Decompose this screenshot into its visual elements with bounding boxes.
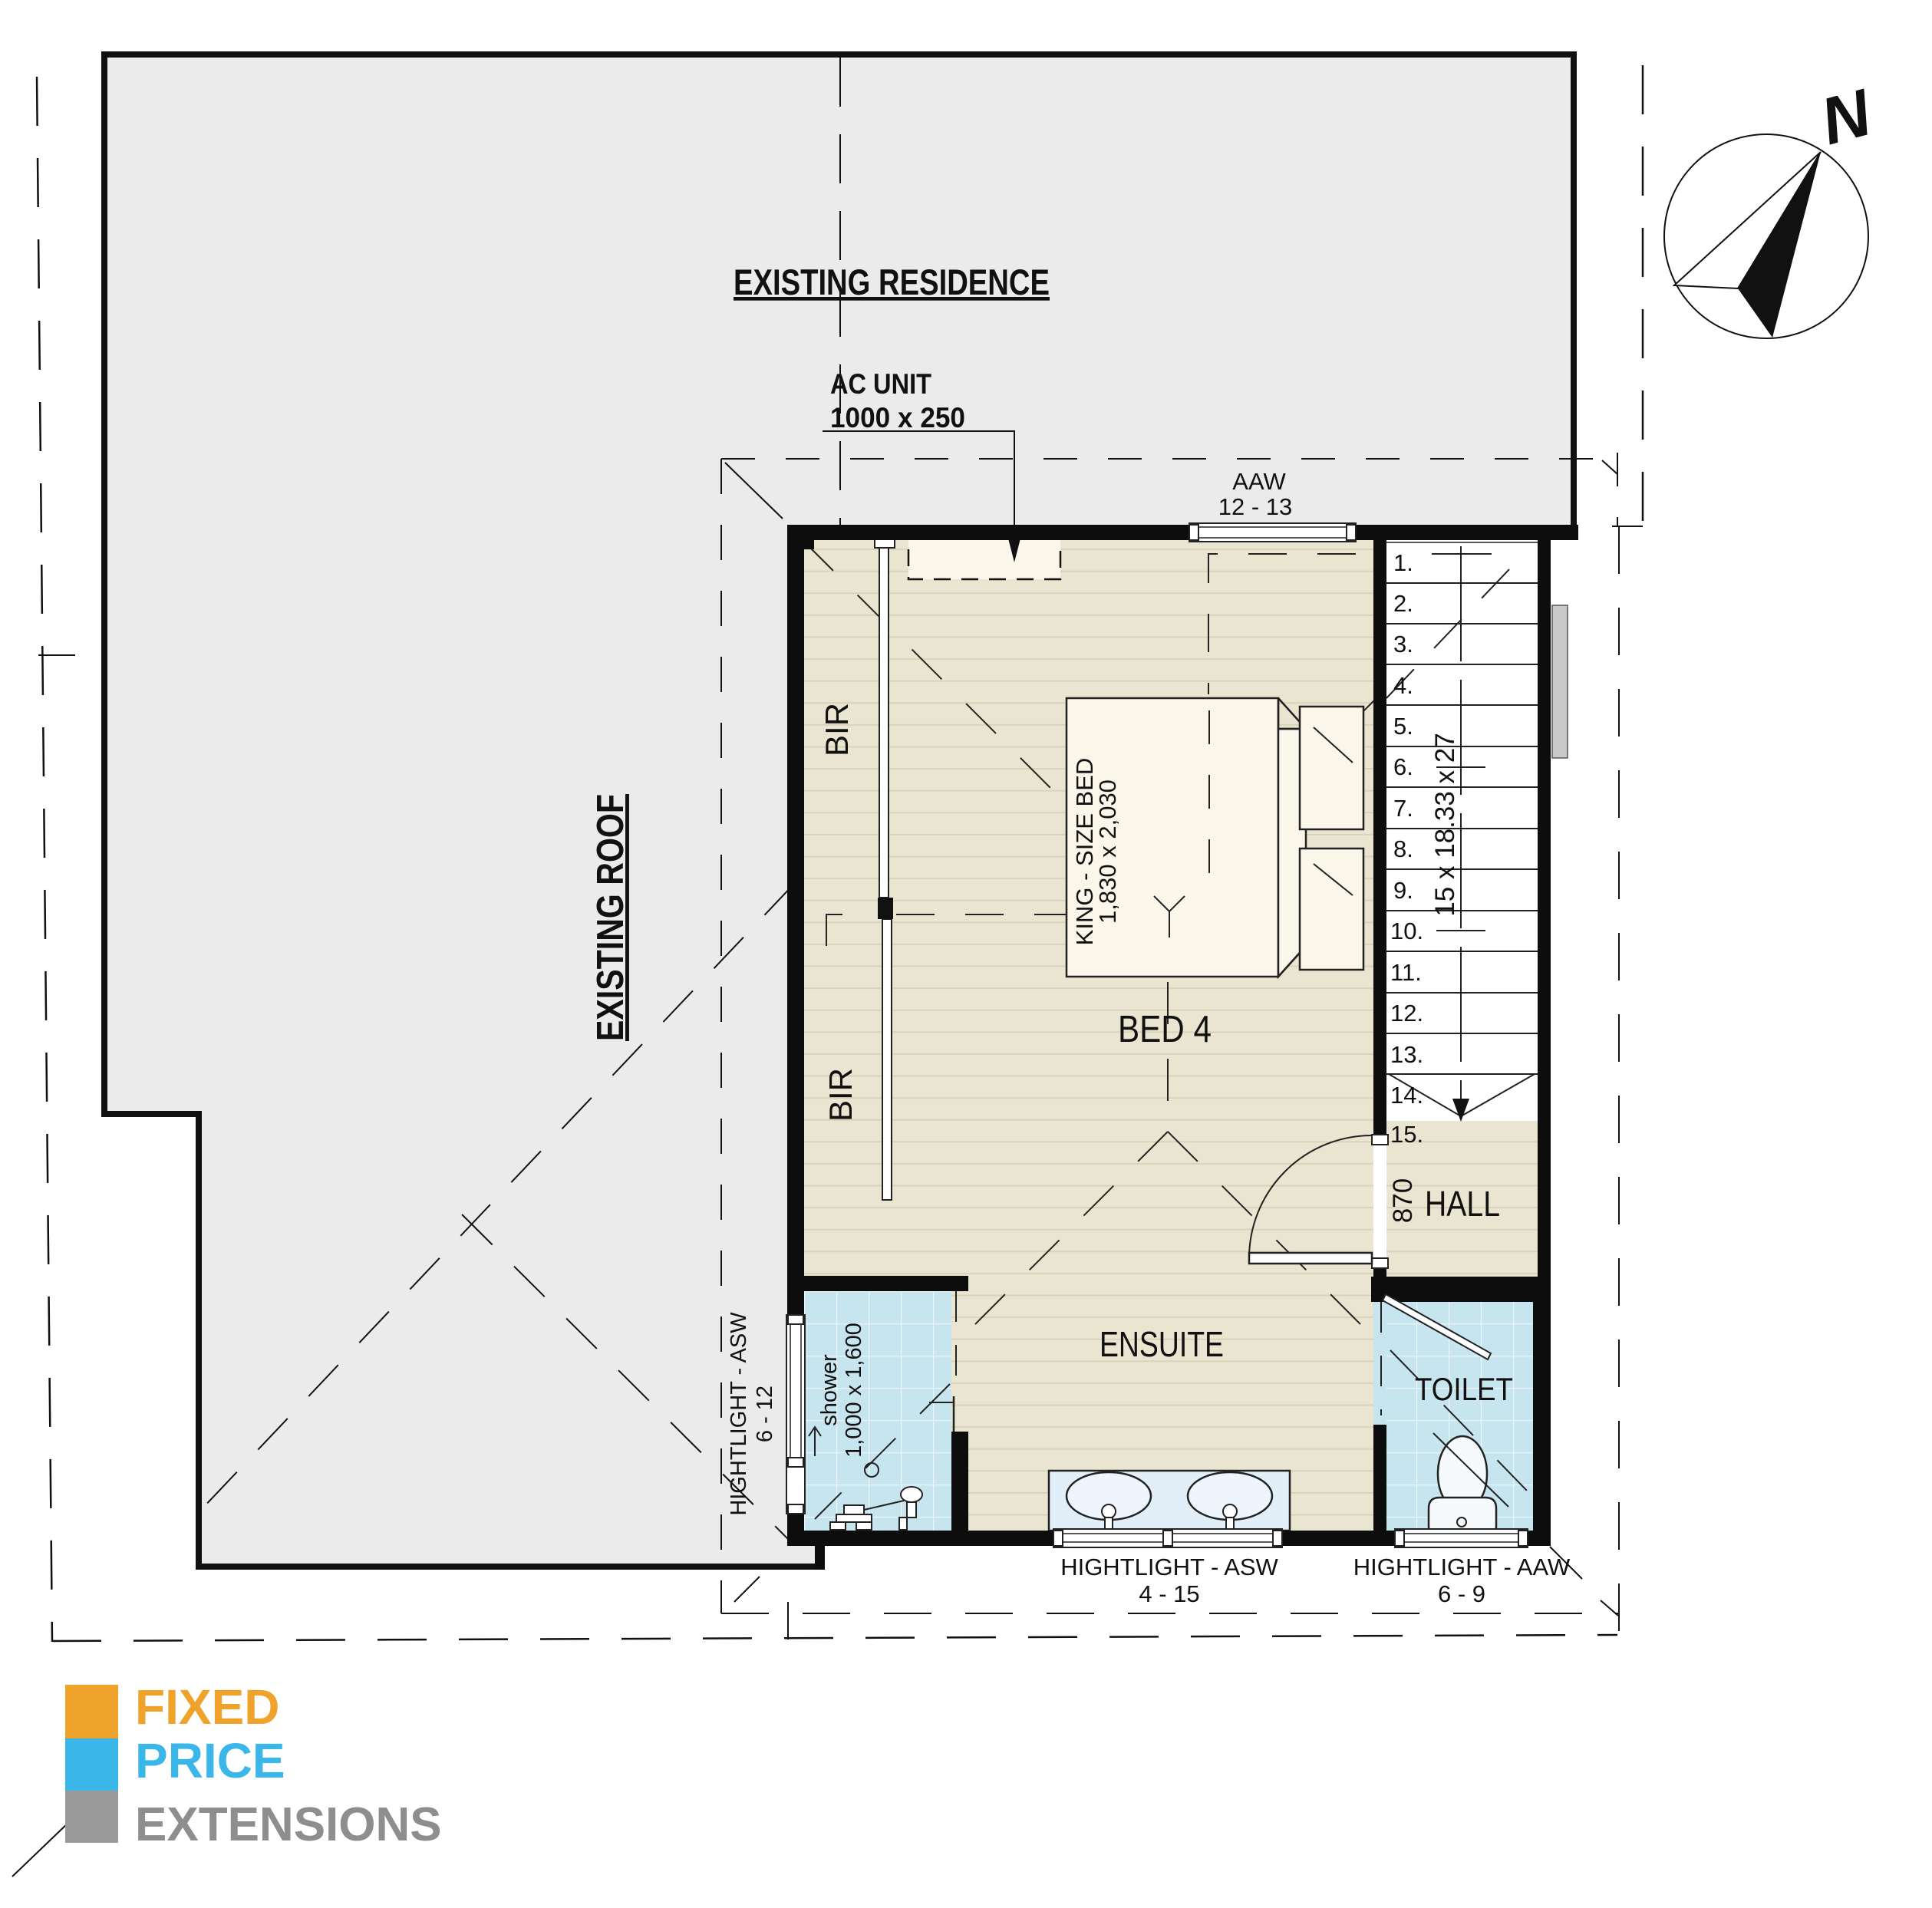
svg-text:14.: 14. <box>1390 1082 1423 1109</box>
svg-text:8.: 8. <box>1393 835 1413 862</box>
svg-text:TOILET: TOILET <box>1415 1371 1513 1407</box>
svg-text:12 - 13: 12 - 13 <box>1218 493 1293 520</box>
svg-text:HIGHTLIGHT - ASW: HIGHTLIGHT - ASW <box>1060 1554 1278 1580</box>
svg-text:BED 4: BED 4 <box>1118 1009 1212 1050</box>
svg-text:EXISTING RESIDENCE: EXISTING RESIDENCE <box>734 262 1050 302</box>
svg-text:7.: 7. <box>1393 795 1413 822</box>
svg-text:4.: 4. <box>1393 672 1413 699</box>
svg-text:4 - 15: 4 - 15 <box>1139 1580 1199 1607</box>
svg-text:13.: 13. <box>1390 1041 1423 1068</box>
svg-text:10.: 10. <box>1390 918 1423 944</box>
svg-text:870: 870 <box>1388 1178 1418 1223</box>
svg-text:AC UNIT: AC UNIT <box>830 368 931 400</box>
svg-text:shower: shower <box>817 1354 842 1426</box>
svg-text:9.: 9. <box>1393 877 1413 904</box>
svg-text:6 - 12: 6 - 12 <box>753 1386 777 1442</box>
svg-text:1,830 x 2,030: 1,830 x 2,030 <box>1094 779 1121 924</box>
svg-text:BIR: BIR <box>823 1068 859 1122</box>
svg-text:15.: 15. <box>1390 1121 1423 1148</box>
svg-text:5.: 5. <box>1393 713 1413 740</box>
svg-text:ENSUITE: ENSUITE <box>1100 1324 1224 1364</box>
svg-text:PRICE: PRICE <box>135 1733 285 1788</box>
svg-text:1.: 1. <box>1393 549 1413 576</box>
svg-text:1000 x 250: 1000 x 250 <box>830 402 965 433</box>
svg-text:HALL: HALL <box>1425 1184 1500 1224</box>
svg-text:3.: 3. <box>1393 631 1413 657</box>
svg-text:15 x 18.33 x 27: 15 x 18.33 x 27 <box>1430 733 1460 916</box>
svg-text:6.: 6. <box>1393 753 1413 780</box>
svg-text:6 - 9: 6 - 9 <box>1438 1580 1485 1607</box>
svg-text:AAW: AAW <box>1232 468 1286 495</box>
svg-text:EXISTING ROOF: EXISTING ROOF <box>590 794 631 1041</box>
svg-text:HIGHTLIGHT - ASW: HIGHTLIGHT - ASW <box>727 1312 751 1516</box>
svg-text:HIGHTLIGHT - AAW: HIGHTLIGHT - AAW <box>1353 1554 1571 1580</box>
svg-text:FIXED: FIXED <box>135 1679 279 1735</box>
svg-text:EXTENSIONS: EXTENSIONS <box>135 1798 442 1851</box>
svg-text:1,000 x 1,600: 1,000 x 1,600 <box>842 1323 866 1458</box>
svg-text:11.: 11. <box>1390 959 1422 986</box>
svg-text:2.: 2. <box>1393 590 1413 617</box>
svg-text:12.: 12. <box>1390 1000 1423 1026</box>
svg-text:BIR: BIR <box>819 703 855 756</box>
